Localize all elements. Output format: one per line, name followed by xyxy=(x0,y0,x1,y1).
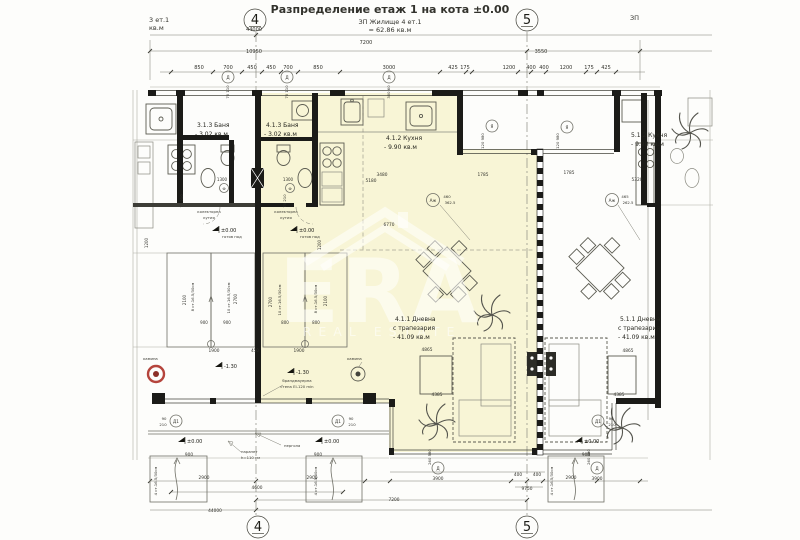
dim-label: 1900 xyxy=(294,348,305,354)
level-minus-text: -1.30 xyxy=(296,370,309,376)
mark-text: Я xyxy=(491,124,494,129)
room-area-apt5-living: - 41.09 кв.м xyxy=(618,334,655,341)
dim-label: 425 xyxy=(448,65,458,71)
finished-floor-text: готов под xyxy=(300,234,320,239)
dim-label: 120 980 xyxy=(480,133,485,149)
room-label-apt5-living: 5.1.1 Дневна xyxy=(620,316,661,323)
mark-text: Ф xyxy=(222,187,225,191)
dim-label: 3000 xyxy=(383,65,396,71)
dim-label: 900 xyxy=(200,320,208,325)
dim-label: 260 580 xyxy=(427,449,432,465)
dim-label: 450 xyxy=(247,65,257,71)
dim-label: 1785 xyxy=(478,172,489,178)
collector-box-label-apt3-line2: кутия xyxy=(203,215,215,220)
dim-label: 4865 xyxy=(422,347,433,353)
room-sub-apt5-living: с трапезария xyxy=(618,325,660,332)
parapet-label-line1: парапет xyxy=(241,449,258,454)
dim-label: 460 xyxy=(443,194,451,199)
dim-label: 10950 xyxy=(246,49,262,55)
mark-text: Я xyxy=(566,125,569,130)
dim-label: 70 110 xyxy=(225,85,230,99)
room-label-apt3-bath: 3.1.3 Баня xyxy=(197,122,230,129)
dim-label: 4385 xyxy=(432,392,443,398)
dim-label: 210 xyxy=(608,422,616,427)
dim-label: 5180 xyxy=(366,178,377,184)
dim-label: 1200 xyxy=(560,65,573,71)
dim-label: 2700 xyxy=(268,296,273,307)
dim-label: 6770 xyxy=(384,222,395,228)
dim-label: 7200 xyxy=(389,497,400,503)
firewall-label-line1: брандмауерна xyxy=(282,378,311,383)
dim-label: 4 ст.16.5/30см xyxy=(313,467,318,496)
dim-label: 3900 xyxy=(433,476,444,482)
dim-label: 90 xyxy=(609,416,614,421)
dim-label: 800 xyxy=(312,320,320,325)
firewall-label-line2: стена EI-120 min xyxy=(280,384,314,389)
dim-label: 300 60 xyxy=(386,85,391,99)
dim-label: 1900 xyxy=(209,348,220,354)
fireplace-label-apt4: камина xyxy=(347,356,362,361)
dim-label: 1300 xyxy=(283,177,294,182)
dim-label: 1200 xyxy=(317,239,322,250)
room-area-apt4-living: - 41.09 кв.м xyxy=(393,334,430,341)
level-zero-text: ±0.00 xyxy=(324,439,339,445)
floor-plan-page: ERA REAL ESTATE Разпределение етаж 1 на … xyxy=(0,0,800,540)
dim-label: 3900 xyxy=(592,476,603,482)
dim-label: 44000 xyxy=(208,508,222,514)
dim-label: 70 210 xyxy=(179,194,184,208)
room-sub-apt4-living: с трапезария xyxy=(393,325,435,332)
dim-label: 4865 xyxy=(623,348,634,354)
dim-label: 3480 xyxy=(377,172,388,178)
room-label-apt4-living: 4.1.1 Дневна xyxy=(395,316,436,323)
collector-box-label-apt4: колекторна xyxy=(274,209,297,214)
dim-label: 1200 xyxy=(144,237,149,248)
dim-label: 700 xyxy=(223,65,233,71)
dim-label: 700 xyxy=(283,65,293,71)
dim-label: 10 ст.16.5/30см xyxy=(277,284,282,315)
mark-text: Д1 xyxy=(595,419,601,424)
dim-label: 1300 xyxy=(217,177,228,182)
dim-label: 400 xyxy=(526,65,536,71)
room-area-apt5-kitchen: - 9.90 кв.м xyxy=(631,141,664,148)
firewall xyxy=(537,149,543,455)
dim-label: 4 ст.16.5/30см xyxy=(549,467,554,496)
room-area-apt3-bath: - 3.02 кв.м xyxy=(195,131,228,138)
dim-label: 262.5 xyxy=(623,200,634,205)
mark-text: Д1 xyxy=(173,419,179,424)
mark-text: Д1 xyxy=(335,419,341,424)
axis-5-bottom-label: 5 xyxy=(523,520,531,535)
dim-label: 850 xyxy=(313,65,323,71)
axis-5-top-label: 5 xyxy=(523,13,531,28)
parapet-label-line2: h=110 см xyxy=(241,455,260,460)
right-neighbor-caption: ЗП xyxy=(630,14,639,22)
dim-label: 362.5 xyxy=(445,200,456,205)
dim-label: 210 xyxy=(348,422,356,427)
dim-label: 425 xyxy=(601,65,611,71)
dim-label: 4600 xyxy=(252,485,263,491)
dim-label: 210 xyxy=(159,422,167,427)
dim-label: 4 ст.16.5/30см xyxy=(153,467,158,496)
axis-4-bottom-label: 4 xyxy=(254,520,262,535)
room-label-apt4-kitchen: 4.1.2 Кухня xyxy=(386,135,422,142)
apartment-area-line2: = 62.86 кв.м xyxy=(369,26,412,34)
dim-label: 175 xyxy=(584,65,594,71)
dim-label: 2100 xyxy=(182,294,187,305)
room-label-apt4-bath: 4.1.3 Баня xyxy=(266,122,299,129)
dim-label: 850 xyxy=(194,65,204,71)
dim-label: 2900 xyxy=(566,475,577,481)
dim-label: 8 ст.16.5/30см xyxy=(190,283,195,312)
dim-label: 120 980 xyxy=(555,133,560,149)
fireplace-label-apt3: камина xyxy=(143,356,158,361)
dim-label: 400 xyxy=(539,65,549,71)
dim-label: 10 ст.16.5/30см xyxy=(226,282,231,313)
dim-label: 465 xyxy=(621,194,629,199)
dim-label: 3550 xyxy=(535,49,548,55)
left-neighbor-caption-line2: кв.м xyxy=(149,24,164,32)
dim-label: 70 110 xyxy=(284,85,289,99)
dim-label: 400 xyxy=(533,472,541,478)
room-area-apt4-bath: - 3.02 кв.м xyxy=(264,131,297,138)
mark-text: Аж xyxy=(430,198,437,203)
collector-box-label-apt3: колекторна xyxy=(197,209,220,214)
dim-label: 175 xyxy=(460,65,470,71)
collector-box-label-apt4-line2: кутия xyxy=(280,215,292,220)
dim-label: 5320 xyxy=(632,177,643,183)
dim-label: 800 xyxy=(281,320,289,325)
room-label-apt5-kitchen: 5.1.2 Кухня xyxy=(631,132,667,139)
dim-label: 1200 xyxy=(503,65,516,71)
level-zero-text: ±0.00 xyxy=(187,439,202,445)
dim-label: 90 xyxy=(162,416,167,421)
dim-label: 900 xyxy=(185,452,193,458)
dim-label: 90 xyxy=(349,416,354,421)
mark-text: Ф xyxy=(288,187,291,191)
finished-floor-text: готов под xyxy=(222,234,242,239)
mark-text: Аж xyxy=(609,198,616,203)
dim-label: 2700 xyxy=(233,293,238,304)
level-minus-text: -1.30 xyxy=(224,364,237,370)
dim-label: 2100 xyxy=(323,295,328,306)
dim-label: 8 ст.16.5/30см xyxy=(313,285,318,314)
dim-label: 9750 xyxy=(522,486,533,492)
dim-label: 2900 xyxy=(199,475,210,481)
axis-4-top-label: 4 xyxy=(251,13,259,28)
apartment-area-line1: ЗП Жилище 4 ет.1 xyxy=(358,18,421,26)
dim-label: 260 580 xyxy=(586,449,591,465)
dim-label: 900 xyxy=(223,320,231,325)
dim-label: 450 xyxy=(251,348,259,353)
pergola-label: пергола xyxy=(284,443,300,448)
dim-label: 44000 xyxy=(246,27,262,33)
dim-label: 4385 xyxy=(614,392,625,398)
dim-label: 1785 xyxy=(564,170,575,176)
floor-plan-drawing: ERA REAL ESTATE Разпределение етаж 1 на … xyxy=(0,0,800,540)
left-neighbor-caption-line1: 3 ет.1 xyxy=(149,16,169,24)
room-area-apt4-kitchen: - 9.90 кв.м xyxy=(384,144,417,151)
page-title: Разпределение етаж 1 на кота ±0.00 xyxy=(271,3,510,16)
dim-label: 70 210 xyxy=(282,194,287,208)
level-zero-text: ±0.00 xyxy=(584,439,599,445)
dim-label: 450 xyxy=(266,65,276,71)
watermark-tagline: REAL ESTATE xyxy=(303,324,462,339)
dim-label: 400 xyxy=(514,472,522,478)
dim-label: 900 xyxy=(314,452,322,458)
dim-label: 7200 xyxy=(360,40,373,46)
